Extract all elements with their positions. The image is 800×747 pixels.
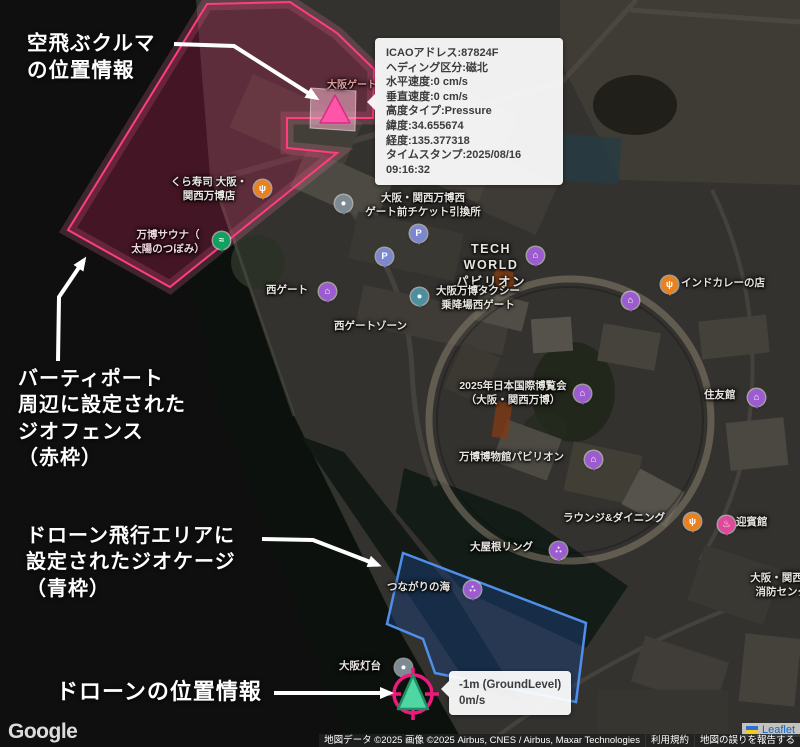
latitude: 緯度:34.655674 — [386, 119, 552, 134]
lighthouse-icon[interactable]: ● — [395, 659, 412, 676]
poi-label-taxi-stand: 大阪万博タクシー 乗降場西ゲート — [426, 285, 530, 312]
drone-speed: 0m/s — [459, 693, 561, 709]
poi-label-ticket-office: 大阪・関西万博西 ゲート前チケット引換所 — [350, 192, 496, 219]
aircraft-telemetry-tooltip: ICAOアドレス:87824F ヘディング区分:磁北 水平速度:0 cm/s 垂… — [375, 38, 563, 185]
poi-label-lounge-dining: ラウンジ&ダイニング — [563, 512, 665, 526]
pavilion-icon[interactable]: ⌂ — [622, 292, 639, 309]
tooltip-pointer — [441, 681, 449, 697]
poi-label-tsunagari-sea: つながりの海 — [387, 581, 450, 595]
vertical-speed: 垂直速度:0 cm/s — [386, 90, 552, 105]
poi-label-west-gate: 西ゲート — [266, 284, 308, 298]
taxi-icon[interactable]: ● — [411, 288, 428, 305]
parking-icon[interactable]: P — [376, 248, 393, 265]
poi-label-grand-ring: 大屋根リング — [470, 541, 533, 555]
gate-icon[interactable]: ⌂ — [319, 283, 336, 300]
map-attribution-bar: 地図データ ©2025 画像 ©2025 Airbus, CNES / Airb… — [319, 734, 800, 747]
map-data-attribution: 地図データ ©2025 画像 ©2025 Airbus, CNES / Airb… — [319, 734, 645, 747]
tooltip-pointer — [367, 94, 375, 110]
parking-icon[interactable]: P — [410, 225, 427, 242]
poi-label-vertiport: 大阪ゲート — [327, 79, 377, 92]
poi-label-fire-center: 大阪・関西万博 消防センター — [742, 572, 800, 599]
expo-icon[interactable]: ⌂ — [574, 385, 591, 402]
annotation-geofence: バーティポート 周辺に設定された ジオフェンス （赤枠） — [18, 366, 186, 472]
ticket-icon[interactable]: ● — [335, 195, 352, 212]
museum-icon[interactable]: ⌂ — [585, 451, 602, 468]
poi-label-guesthouse: 迎賓館 — [736, 516, 768, 530]
ukraine-flag-icon — [746, 726, 758, 734]
poi-label-expo2025: 2025年日本国際博覧会 （大阪・関西万博） — [453, 380, 573, 407]
attraction-icon[interactable]: ∴ — [464, 581, 481, 598]
attraction-icon[interactable]: ∴ — [550, 542, 567, 559]
drone-tooltip: -1m (GroundLevel) 0m/s — [449, 671, 571, 715]
heading-type: ヘディング区分:磁北 — [386, 61, 552, 76]
poi-label-tech-world: TECH WORLD パビリオン — [443, 241, 539, 290]
report-error-link[interactable]: 地図の誤りを報告する — [695, 734, 800, 747]
poi-label-west-gate-zone: 西ゲートゾーン — [334, 320, 407, 334]
annotation-drone: ドローンの位置情報 — [56, 677, 262, 706]
spa-icon[interactable]: ≈ — [213, 232, 230, 249]
restaurant-icon[interactable]: ψ — [254, 180, 271, 197]
drone-altitude: -1m (GroundLevel) — [459, 677, 561, 693]
poi-label-expo-museum: 万博博物館パビリオン — [459, 451, 564, 465]
altitude-type: 高度タイプ:Pressure — [386, 104, 552, 119]
longitude: 経度:135.377318 — [386, 134, 552, 149]
horizontal-speed: 水平速度:0 cm/s — [386, 75, 552, 90]
annotation-flying-car: 空飛ぶクルマ の位置情報 — [27, 30, 155, 84]
terms-link[interactable]: 利用規約 — [646, 734, 694, 747]
map-app-screenshot: ψ ≈ ● P P ⌂ ● ⌂ ⌂ ⌂ ψ ⌂ ⌂ ψ ♨ ∴ ∴ ● くら寿司… — [0, 0, 800, 747]
guesthouse-icon[interactable]: ♨ — [718, 516, 735, 533]
timestamp: タイムスタンプ:2025/08/16 09:16:32 — [386, 148, 552, 177]
pavilion-icon[interactable]: ⌂ — [748, 389, 765, 406]
poi-label-kura-sushi: くら寿司 大阪・ 関西万博店 — [163, 176, 255, 203]
poi-label-sauna: 万博サウナ（ 太陽のつぼみ） — [128, 229, 208, 256]
poi-label-lighthouse: 大阪灯台 — [339, 660, 381, 674]
icao-address: ICAOアドレス:87824F — [386, 46, 552, 61]
restaurant-icon[interactable]: ψ — [661, 276, 678, 293]
pavilion-icon[interactable]: ⌂ — [527, 247, 544, 264]
annotation-geocage: ドローン飛行エリアに 設定されたジオケージ （青枠） — [26, 523, 236, 602]
poi-label-curry: インドカレーの店 — [681, 277, 765, 291]
vertiport-pad — [310, 88, 356, 131]
google-logo[interactable]: Google — [8, 720, 77, 744]
restaurant-icon[interactable]: ψ — [684, 513, 701, 530]
poi-label-sumitomo: 住友館 — [704, 389, 736, 403]
